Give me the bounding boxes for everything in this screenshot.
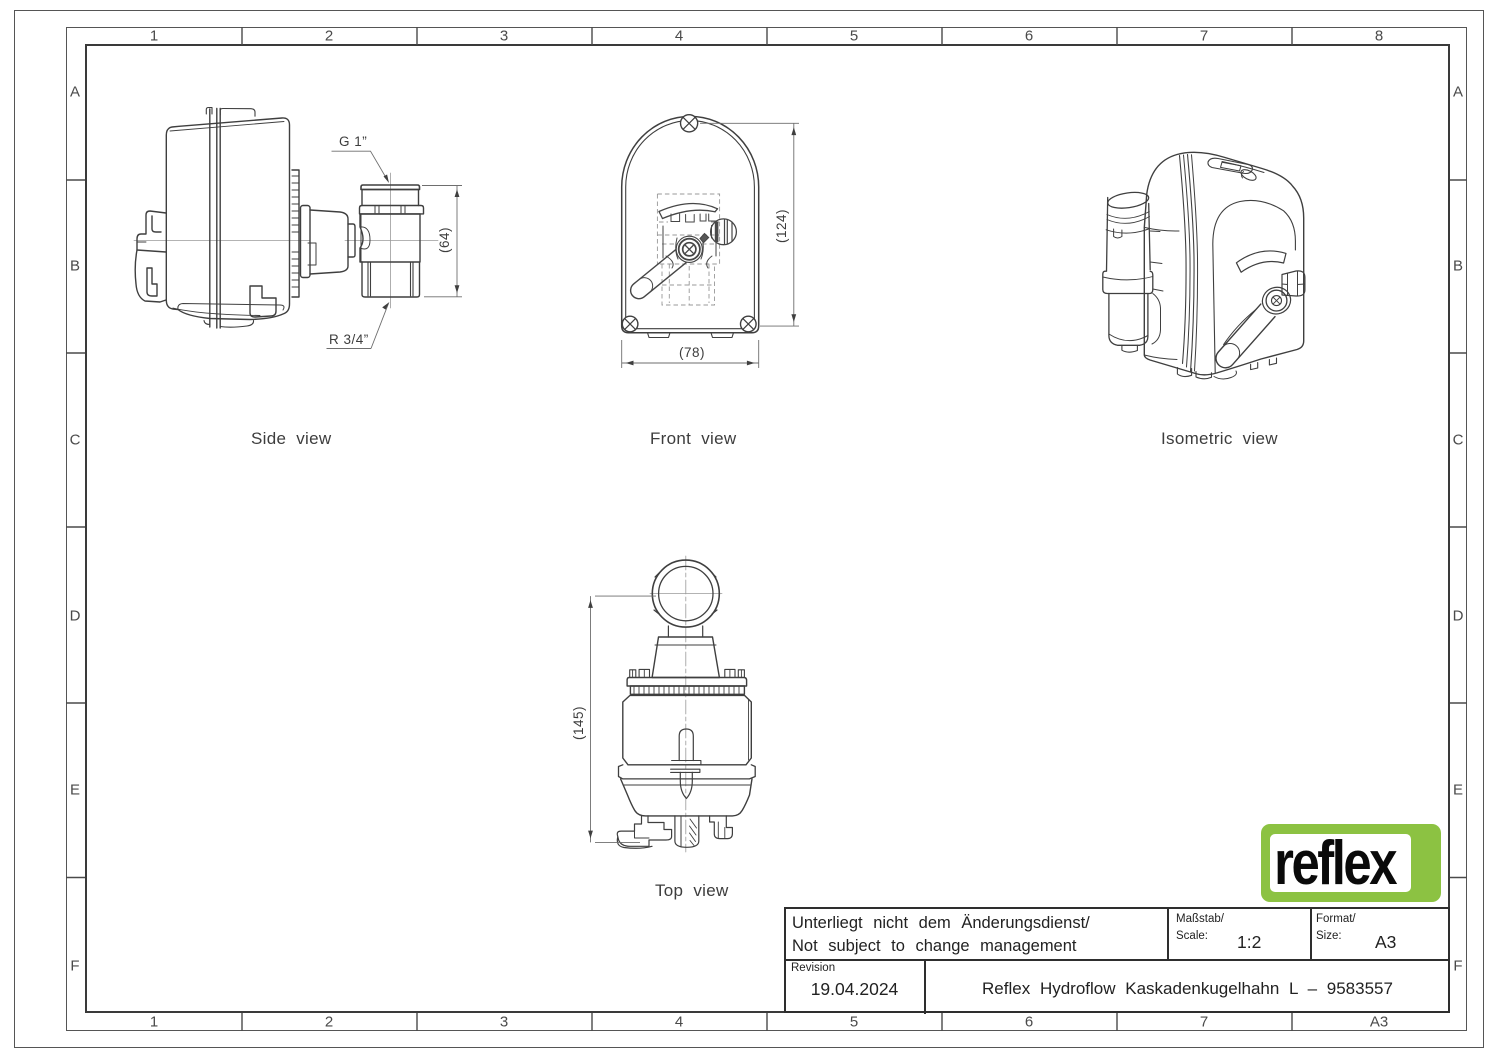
svg-text:G 1”: G 1” xyxy=(339,134,367,149)
svg-text:(145): (145) xyxy=(571,706,586,740)
svg-text:(78): (78) xyxy=(679,345,705,360)
svg-text:R 3/4”: R 3/4” xyxy=(329,332,369,347)
svg-text:(124): (124) xyxy=(774,209,789,243)
svg-text:(64): (64) xyxy=(437,227,452,253)
